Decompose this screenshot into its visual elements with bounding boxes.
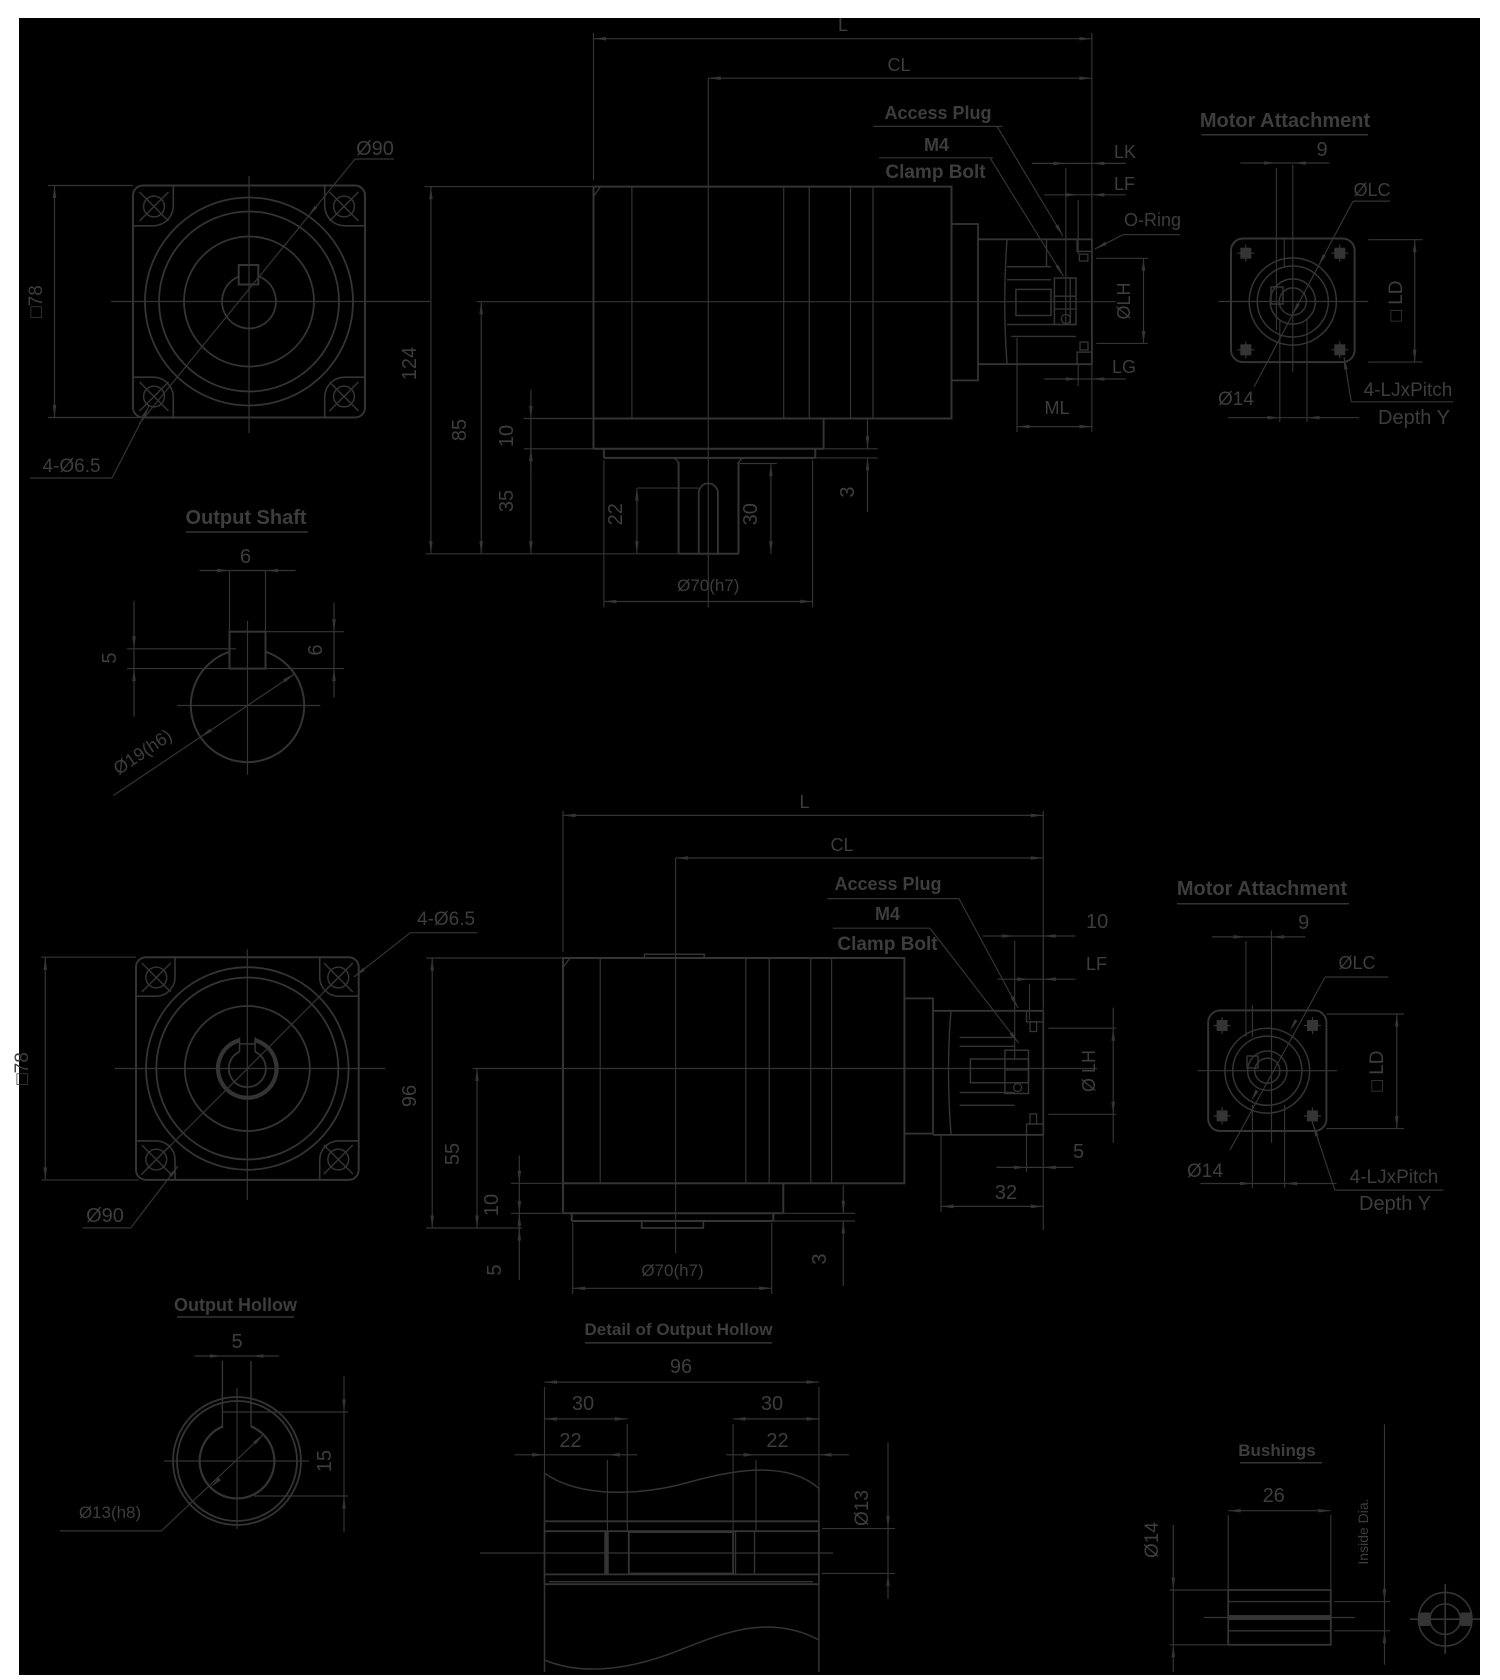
svg-text:Inside Dia.: Inside Dia.: [1355, 1498, 1371, 1564]
svg-text:ØLC: ØLC: [1338, 953, 1375, 973]
svg-text:Ø90: Ø90: [86, 1205, 124, 1227]
svg-text:5: 5: [99, 652, 121, 663]
svg-text:Ø14: Ø14: [1142, 1522, 1163, 1558]
svg-text:CL: CL: [887, 55, 910, 75]
svg-text:124: 124: [399, 347, 421, 380]
svg-text:Bushings: Bushings: [1238, 1441, 1315, 1460]
svg-text:10: 10: [481, 1194, 503, 1216]
svg-text:9: 9: [1298, 912, 1309, 934]
svg-text:22: 22: [766, 1430, 788, 1452]
svg-text:85: 85: [449, 419, 471, 441]
svg-text:Ø70(h7): Ø70(h7): [677, 576, 739, 595]
svg-text:3: 3: [809, 1253, 831, 1264]
svg-text:26: 26: [1263, 1485, 1285, 1507]
svg-text:5: 5: [231, 1331, 242, 1353]
svg-text:30: 30: [572, 1393, 594, 1415]
svg-text:5: 5: [484, 1264, 506, 1275]
svg-text:30: 30: [740, 503, 762, 525]
svg-text:LG: LG: [1112, 357, 1136, 377]
svg-text:55: 55: [442, 1143, 464, 1165]
svg-text:Motor Attachment: Motor Attachment: [1200, 110, 1371, 132]
svg-text:Ø13: Ø13: [852, 1490, 873, 1526]
svg-text:3: 3: [837, 486, 859, 497]
svg-text:LF: LF: [1114, 174, 1135, 194]
svg-text:ML: ML: [1044, 398, 1069, 418]
svg-text:10: 10: [1086, 911, 1108, 933]
svg-text:Ø90: Ø90: [356, 138, 394, 160]
svg-text:Ø14: Ø14: [1187, 1161, 1223, 1182]
svg-text:Output Hollow: Output Hollow: [174, 1295, 298, 1315]
svg-text:Clamp Bolt: Clamp Bolt: [837, 934, 938, 955]
svg-text:15: 15: [314, 1450, 336, 1472]
svg-text:L: L: [799, 792, 809, 812]
svg-text:22: 22: [559, 1430, 581, 1452]
svg-text:9: 9: [1316, 139, 1327, 161]
svg-text:Ø14: Ø14: [1218, 389, 1254, 410]
svg-text:O-Ring: O-Ring: [1124, 210, 1181, 230]
svg-text:Output Shaft: Output Shaft: [185, 507, 306, 529]
svg-text:Access Plug: Access Plug: [884, 103, 991, 123]
svg-text:LK: LK: [1114, 142, 1136, 162]
svg-text:M4: M4: [924, 135, 949, 155]
svg-text:□78: □78: [26, 285, 47, 318]
svg-text:Clamp Bolt: Clamp Bolt: [885, 162, 986, 183]
svg-text:4-LJxPitch: 4-LJxPitch: [1364, 380, 1453, 401]
svg-text:M4: M4: [875, 904, 900, 924]
svg-text:96: 96: [670, 1356, 692, 1378]
svg-text:ØLC: ØLC: [1353, 180, 1390, 200]
svg-text:□ LD: □ LD: [1386, 280, 1407, 321]
svg-text:6: 6: [240, 546, 251, 568]
svg-text:Ø13(h8): Ø13(h8): [79, 1503, 141, 1522]
svg-text:35: 35: [496, 490, 518, 512]
svg-text:Access Plug: Access Plug: [834, 874, 941, 894]
svg-text:6: 6: [305, 644, 327, 655]
svg-text:Depth Y: Depth Y: [1359, 1193, 1431, 1215]
svg-text:CL: CL: [830, 835, 853, 855]
svg-text:30: 30: [761, 1393, 783, 1415]
svg-text:□78: □78: [12, 1052, 33, 1085]
svg-text:ØLH: ØLH: [1114, 282, 1134, 319]
svg-text:LF: LF: [1086, 954, 1107, 974]
svg-text:10: 10: [496, 425, 518, 447]
svg-text:Ø70(h7): Ø70(h7): [641, 1261, 703, 1280]
svg-text:L: L: [838, 15, 848, 35]
svg-text:Ø LH: Ø LH: [1079, 1050, 1099, 1092]
svg-text:22: 22: [605, 503, 627, 525]
svg-text:Motor Attachment: Motor Attachment: [1177, 878, 1348, 900]
svg-text:4-LJxPitch: 4-LJxPitch: [1350, 1167, 1439, 1188]
svg-text:5: 5: [1073, 1141, 1084, 1163]
svg-text:Detail of Output Hollow: Detail of Output Hollow: [585, 1320, 774, 1339]
svg-text:□ LD: □ LD: [1367, 1050, 1388, 1091]
svg-text:4-Ø6.5: 4-Ø6.5: [417, 909, 475, 930]
svg-text:4-Ø6.5: 4-Ø6.5: [42, 456, 100, 477]
svg-text:32: 32: [995, 1182, 1017, 1204]
svg-text:Depth Y: Depth Y: [1378, 407, 1450, 429]
svg-text:96: 96: [399, 1085, 421, 1107]
